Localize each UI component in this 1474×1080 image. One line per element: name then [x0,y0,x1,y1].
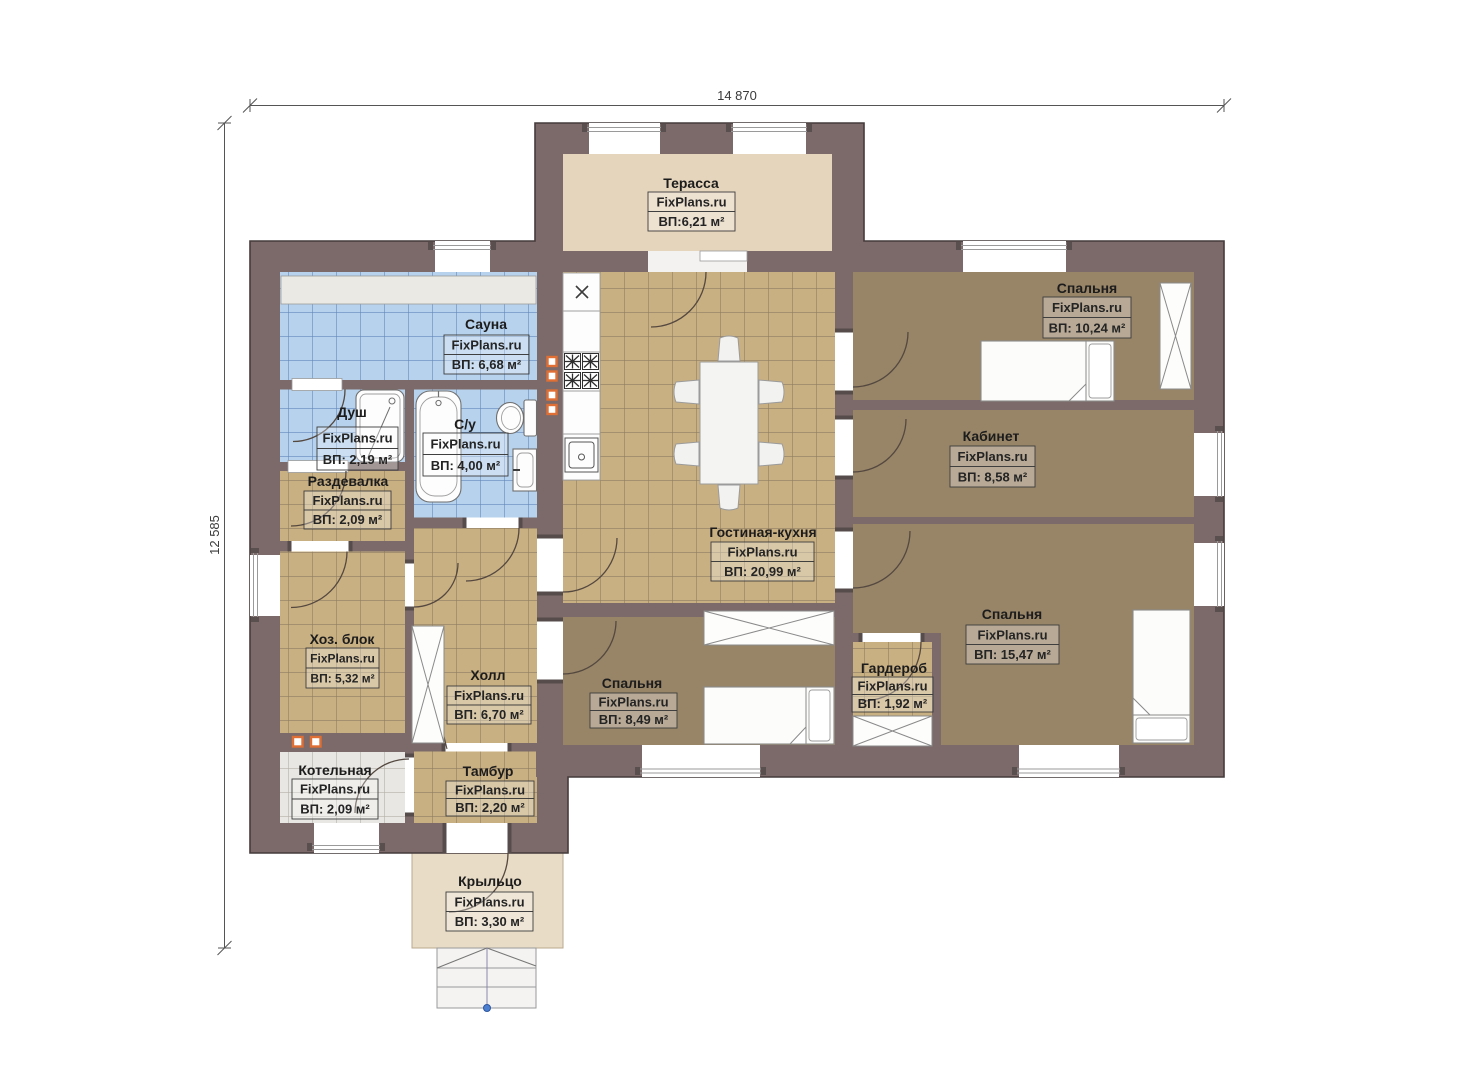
svg-text:ВП: 8,58 м²: ВП: 8,58 м² [958,469,1028,484]
svg-text:Гардероб: Гардероб [861,660,928,676]
svg-text:FixPlans.ru: FixPlans.ru [454,894,524,909]
svg-text:Холл: Холл [470,667,505,683]
svg-text:FixPlans.ru: FixPlans.ru [454,688,524,703]
svg-text:ВП: 5,32 м²: ВП: 5,32 м² [310,672,374,686]
svg-text:ВП: 1,92 м²: ВП: 1,92 м² [858,696,928,711]
svg-text:ВП: 15,47 м²: ВП: 15,47 м² [974,647,1051,662]
svg-text:Хоз. блок: Хоз. блок [310,631,376,647]
svg-text:ВП: 20,99 м²: ВП: 20,99 м² [724,564,801,579]
svg-text:14 870: 14 870 [717,88,757,103]
svg-text:FixPlans.ru: FixPlans.ru [857,678,927,693]
svg-text:FixPlans.ru: FixPlans.ru [455,782,525,797]
svg-text:FixPlans.ru: FixPlans.ru [656,194,726,209]
svg-text:FixPlans.ru: FixPlans.ru [430,436,500,451]
svg-text:ВП: 3,30 м²: ВП: 3,30 м² [455,914,525,929]
svg-text:Раздевалка: Раздевалка [308,473,389,489]
svg-text:ВП: 8,49 м²: ВП: 8,49 м² [599,712,669,727]
svg-text:FixPlans.ru: FixPlans.ru [322,430,392,445]
svg-text:Спальня: Спальня [982,606,1042,622]
svg-text:С/у: С/у [454,416,476,432]
svg-text:FixPlans.ru: FixPlans.ru [300,782,370,797]
svg-text:ВП: 2,20 м²: ВП: 2,20 м² [455,800,525,815]
svg-text:Терасса: Терасса [663,175,719,191]
svg-text:Котельная: Котельная [298,762,371,778]
svg-text:Тамбур: Тамбур [463,763,514,779]
svg-text:12 585: 12 585 [207,515,222,555]
svg-text:FixPlans.ru: FixPlans.ru [451,337,521,352]
svg-text:ВП: 6,68 м²: ВП: 6,68 м² [452,357,522,372]
svg-text:FixPlans.ru: FixPlans.ru [1052,300,1122,315]
svg-text:FixPlans.ru: FixPlans.ru [727,544,797,559]
svg-text:FixPlans.ru: FixPlans.ru [977,627,1047,642]
svg-text:Сауна: Сауна [465,316,507,332]
svg-text:ВП: 2,09 м²: ВП: 2,09 м² [300,802,370,817]
svg-text:Гостиная-кухня: Гостиная-кухня [709,524,816,540]
svg-text:ВП: 4,00 м²: ВП: 4,00 м² [431,458,501,473]
svg-text:Кабинет: Кабинет [963,428,1020,444]
svg-text:Спальня: Спальня [1057,280,1117,296]
svg-text:Крыльцо: Крыльцо [458,873,522,889]
svg-text:FixPlans.ru: FixPlans.ru [598,694,668,709]
svg-text:ВП: 10,24 м²: ВП: 10,24 м² [1049,320,1126,335]
svg-text:Спальня: Спальня [602,675,662,691]
svg-text:ВП: 2,09 м²: ВП: 2,09 м² [313,512,383,527]
svg-text:FixPlans.ru: FixPlans.ru [312,493,382,508]
svg-text:FixPlans.ru: FixPlans.ru [310,652,375,666]
svg-text:Душ: Душ [337,404,367,420]
svg-text:ВП:6,21 м²: ВП:6,21 м² [659,214,726,229]
svg-text:ВП: 6,70 м²: ВП: 6,70 м² [454,707,524,722]
svg-text:ВП: 2,19 м²: ВП: 2,19 м² [323,452,393,467]
svg-text:FixPlans.ru: FixPlans.ru [957,449,1027,464]
